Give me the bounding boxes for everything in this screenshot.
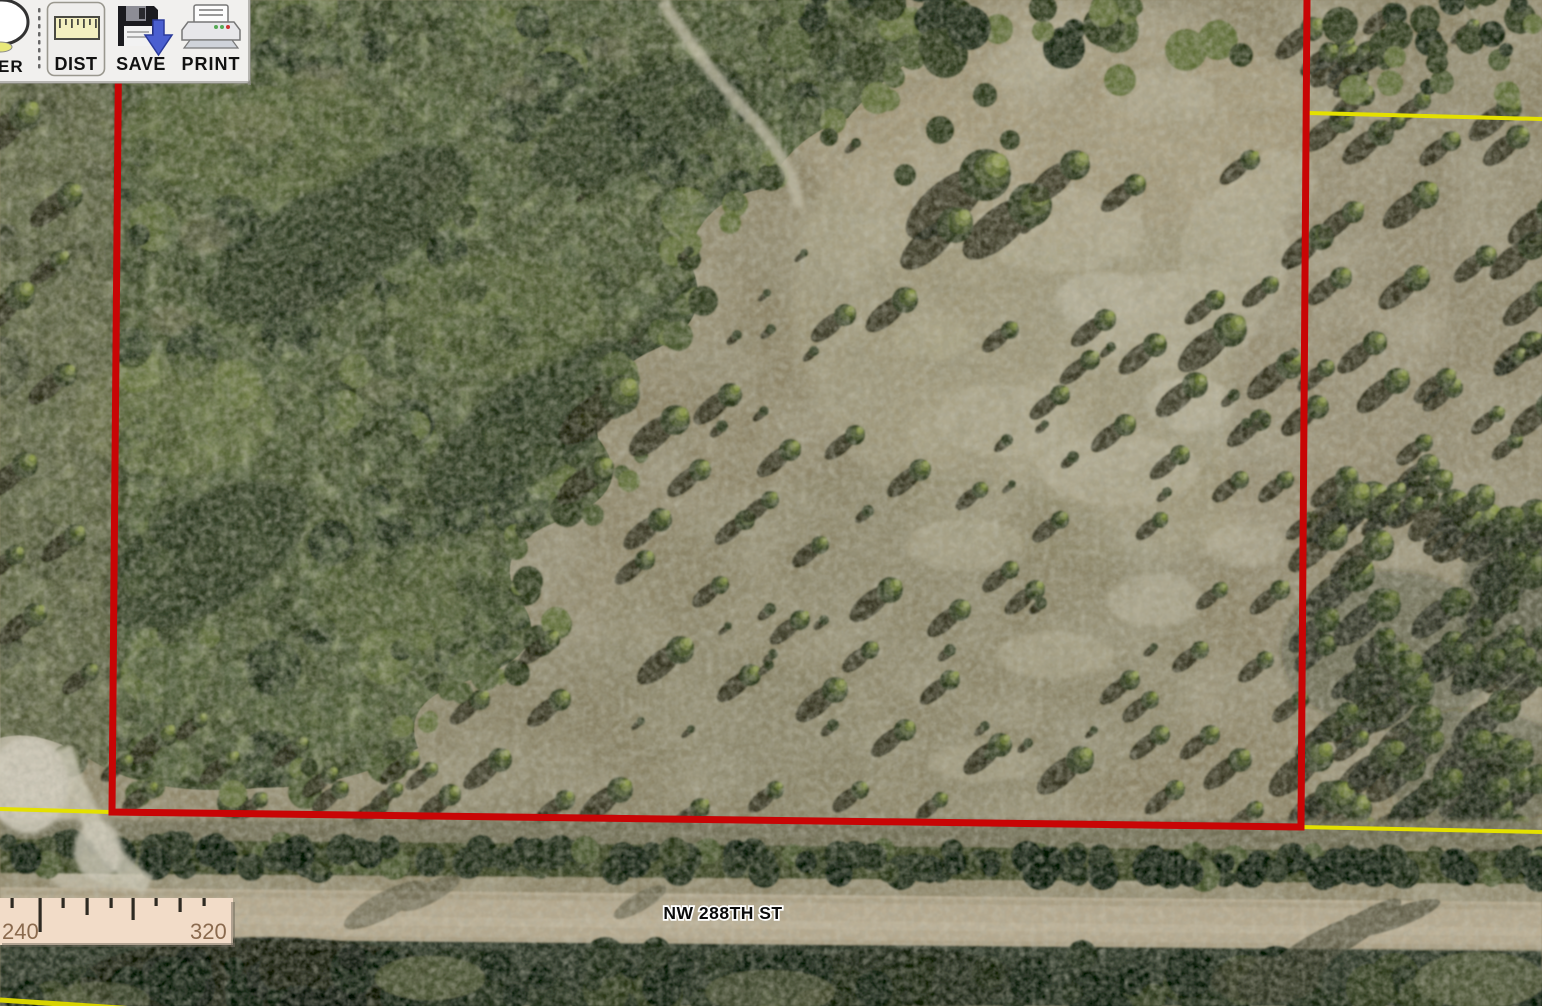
svg-text:PRINT: PRINT [182,54,241,74]
svg-text:ER: ER [0,57,24,76]
svg-text:NW 288TH ST: NW 288TH ST [663,903,782,923]
svg-text:SAVE: SAVE [116,54,166,74]
svg-text:DIST: DIST [54,54,97,74]
svg-text:240: 240 [2,919,39,944]
svg-text:320: 320 [190,919,227,944]
